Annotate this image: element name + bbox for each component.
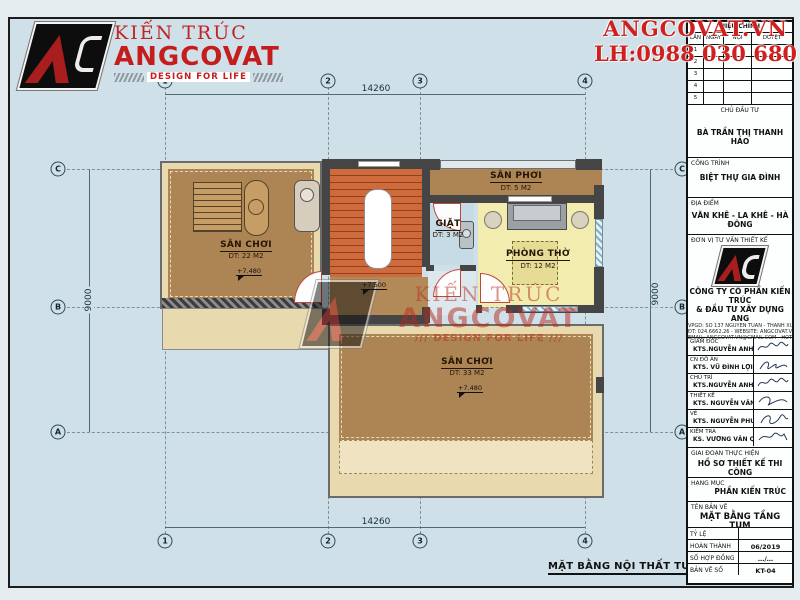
signer-name: KS. VƯƠNG VĂN QUÂN (690, 436, 751, 444)
decor-pot-right (571, 211, 589, 229)
wall-laundry-bottom-right (460, 265, 476, 271)
grid-bubble-col-3-top: 3 (413, 74, 428, 89)
stage-label: GIAI ĐOẠN THỰC HIỆN (688, 448, 792, 457)
category-label: HẠNG MỤC (688, 478, 792, 487)
client-value: BÀ TRẦN THỊ THANH HẢO (688, 126, 792, 148)
signer-row: CN ĐỒ ÁNKTS. VŨ ĐÌNH LỢI (688, 356, 792, 374)
category-value: PHẦN KIẾN TRÚC (688, 487, 792, 496)
sheet-name-label: TÊN BẢN VẼ (688, 502, 792, 511)
grid-bubble-col-1-bottom: 1 (158, 534, 173, 549)
room-label-laundry: GIẶT (435, 219, 460, 231)
brand-pre-title: KIẾN TRÚC (114, 22, 283, 44)
room-label-bottom-terrace: SÂN CHƠI (441, 357, 493, 369)
dimension-value-bottom: 14260 (360, 517, 393, 527)
meta-row: BẢN VẼ SỐ KT-04 (688, 564, 792, 575)
furniture-lounge-knob (248, 199, 264, 215)
meta-row: TỶ LỆ (688, 528, 792, 540)
level-corridor: +7.500 (361, 281, 387, 290)
meta-label: BẢN VẼ SỐ (688, 564, 739, 575)
room-label-drying-yard: SÂN PHƠI (490, 171, 542, 183)
title-block: HIỆU CHỈNH LẦN NGÀY NỘI DUNG DUYỆT 1 2 3… (686, 20, 794, 585)
grid-bubble-col-2-bottom: 2 (321, 534, 336, 549)
grid-bubble-row-c-left: C (51, 162, 66, 177)
grid-bubble-col-4-top: 4 (578, 74, 593, 89)
company-logo-icon (17, 22, 115, 90)
grid-bubble-col-2-top: 2 (321, 74, 336, 89)
signer-role: THIẾT KẾ (690, 393, 751, 400)
signer-row: THIẾT KẾKTS. NGUYỄN VĂN ĐẠT (688, 392, 792, 410)
stage-section: GIAI ĐOẠN THỰC HIỆN HỒ SƠ THIẾT KẾ THI C… (688, 448, 792, 478)
client-section: CHỦ ĐẦU TƯ BÀ TRẦN THỊ THANH HẢO (688, 105, 792, 158)
revision-cell (724, 93, 752, 105)
revision-row-number: 4 (688, 81, 704, 93)
contact-phone: LH:0988 030 680 (583, 41, 800, 67)
revision-cell (704, 81, 724, 93)
floor-bottom-terrace-band (339, 440, 593, 474)
wall-bottom-terrace-nub (596, 377, 604, 393)
wall-stair-left (322, 169, 330, 275)
location-label: ĐỊA ĐIỂM (688, 198, 792, 207)
meta-row: SỐ HỢP ĐỒNG …/… (688, 552, 792, 564)
revision-cell (704, 69, 724, 81)
window-drying-worship (508, 196, 552, 202)
water-tank-cap (300, 188, 314, 202)
signer-role: CN ĐỒ ÁN (690, 357, 751, 364)
meta-value: …/… (739, 552, 792, 563)
signature-icon (754, 356, 792, 373)
signer-name: KTS. NGUYỄN PHƯƠNG HÀ (690, 418, 751, 426)
altar-cabinet-top (513, 205, 561, 221)
dimension-value-top: 14260 (360, 84, 393, 94)
brand-tagline: DESIGN FOR LIFE (147, 72, 250, 82)
dimension-line-bottom (165, 527, 585, 528)
revision-cell (752, 69, 792, 81)
signature-icon (754, 410, 792, 427)
brand-name: ANGCOVAT (114, 44, 283, 71)
room-area-laundry: DT: 3 M2 (433, 231, 464, 239)
level-marker-icon (238, 276, 244, 281)
company-logo-icon (712, 246, 768, 286)
meta-row: HOÀN THÀNH 06/2019 (688, 540, 792, 552)
revision-cell (724, 81, 752, 93)
meta-value (739, 528, 792, 539)
level-marker-icon (459, 393, 465, 398)
location-section: ĐỊA ĐIỂM VĂN KHÊ - LA KHÊ - HÀ ĐÔNG (688, 198, 792, 235)
plan-title: MẶT BẰNG NỘI THẤT TUM (548, 561, 700, 575)
signer-role: KIỂM TRA (690, 429, 751, 436)
level-marker-icon (363, 290, 369, 295)
signature-icon (754, 338, 792, 355)
grid-bubble-col-4-bottom: 4 (578, 534, 593, 549)
project-section: CÔNG TRÌNH BIỆT THỰ GIA ĐÌNH (688, 158, 792, 198)
signer-row: VẼKTS. NGUYỄN PHƯƠNG HÀ (688, 410, 792, 428)
signer-row: KIỂM TRAKS. VƯƠNG VĂN QUÂN (688, 428, 792, 446)
signer-row: CHỦ TRÌKTS.NGUYỄN ANH TUẤN (688, 374, 792, 392)
wall-laundry-bottom-left (426, 265, 434, 271)
revision-row-number: 5 (688, 93, 704, 105)
contact-website: ANGCOVAT.VN (583, 16, 800, 41)
grid-bubble-col-3-bottom: 3 (413, 534, 428, 549)
signer-row: GIÁM ĐỐCKTS.NGUYỄN ANH TUẤN (688, 338, 792, 356)
revision-cell (752, 93, 792, 105)
furniture-bench (193, 182, 242, 232)
signer-name: KTS.NGUYỄN ANH TUẤN (690, 346, 751, 354)
signer-name: KTS. VŨ ĐÌNH LỢI (690, 364, 751, 372)
client-label: CHỦ ĐẦU TƯ (688, 105, 792, 114)
signer-name: KTS. NGUYỄN VĂN ĐẠT (690, 400, 751, 408)
signer-role: VẼ (690, 411, 751, 418)
room-area-worship: DT: 12 M2 (520, 262, 555, 270)
level-bottom-terrace: +7.480 (457, 384, 483, 393)
dimension-value-left: 9000 (84, 287, 94, 314)
meta-value: KT-04 (739, 564, 792, 575)
room-area-left-terrace: DT: 22 M2 (228, 252, 263, 260)
wall-corridor-bottom (328, 315, 428, 324)
brand-tagline-band: DESIGN FOR LIFE (114, 72, 283, 82)
signer-role: GIÁM ĐỐC (690, 339, 751, 346)
window-worship-right (595, 219, 603, 267)
wall-laundry-left-mid (422, 197, 430, 267)
dimension-value-right: 9000 (651, 281, 661, 308)
level-left-terrace: +7.480 (236, 267, 262, 276)
consultant-label: ĐƠN VỊ TƯ VẤN THIẾT KẾ (688, 235, 792, 244)
window-stair-top (358, 161, 400, 167)
revision-cell (704, 93, 724, 105)
company-name-line2: & ĐẦU TƯ XÂY DỰNG ANG (688, 305, 792, 323)
meta-label: TỶ LỆ (688, 528, 739, 539)
meta-value: 06/2019 (739, 540, 792, 551)
grid-bubble-row-a-left: A (51, 425, 66, 440)
project-label: CÔNG TRÌNH (688, 158, 792, 167)
room-area-drying-yard: DT: 5 M2 (501, 184, 532, 192)
wall-drying-top-pier-left (422, 159, 440, 170)
company-name-line1: CÔNG TY CỔ PHẦN KIẾN TRÚC (688, 287, 792, 305)
signatures-section: GIÁM ĐỐCKTS.NGUYỄN ANH TUẤN CN ĐỒ ÁNKTS.… (688, 338, 792, 448)
room-label-left-terrace: SÂN CHƠI (220, 240, 272, 252)
consultant-section: ĐƠN VỊ TƯ VẤN THIẾT KẾ CÔNG TY CỔ PHẦN K… (688, 235, 792, 338)
location-value: VĂN KHÊ - LA KHÊ - HÀ ĐÔNG (688, 209, 792, 231)
wall-drying-top-pier-right (576, 159, 602, 170)
stair-well (364, 189, 392, 269)
sheet-name-section: TÊN BẢN VẼ MẶT BẰNG TẦNG TUM (688, 502, 792, 528)
contact-overlay: ANGCOVAT.VN LH:0988 030 680 (583, 16, 800, 67)
revision-row-number: 3 (688, 69, 704, 81)
meta-label: HOÀN THÀNH (688, 540, 739, 551)
revision-cell (752, 81, 792, 93)
project-value: BIỆT THỰ GIA ĐÌNH (688, 171, 792, 184)
decor-pot-left (484, 211, 502, 229)
room-label-worship: PHÒNG THỜ (506, 249, 570, 261)
drawing-sheet: 14260 14260 9000 9000 1 2 3 4 1 2 3 4 C … (8, 17, 794, 588)
hatch-icon (253, 73, 283, 82)
stage-value: HỒ SƠ THIẾT KẾ THI CÔNG (688, 457, 792, 479)
signature-icon (754, 374, 792, 391)
signature-icon (754, 392, 792, 409)
signature-icon (754, 428, 792, 446)
category-section: HẠNG MỤC PHẦN KIẾN TRÚC (688, 478, 792, 502)
meta-label: SỐ HỢP ĐỒNG (688, 552, 739, 563)
signer-role: CHỦ TRÌ (690, 375, 751, 382)
room-area-bottom-terrace: DT: 33 M2 (449, 369, 484, 377)
revision-cell (724, 69, 752, 81)
washing-machine-door (462, 229, 471, 238)
company-brand: KIẾN TRÚC ANGCOVAT DESIGN FOR LIFE (26, 22, 318, 98)
wall-worship-right-upper (594, 185, 604, 219)
meta-table: TỶ LỆ HOÀN THÀNH 06/2019 SỐ HỢP ĐỒNG …/…… (688, 528, 792, 583)
grid-bubble-row-b-left: B (51, 300, 66, 315)
railing-drying-top (440, 160, 576, 169)
hatch-icon (114, 73, 144, 82)
signer-name: KTS.NGUYỄN ANH TUẤN (690, 382, 751, 390)
wall-worship-bottom-pier (476, 305, 482, 313)
wall-laundry-left (422, 169, 430, 197)
window-worship-bottom (522, 306, 578, 312)
